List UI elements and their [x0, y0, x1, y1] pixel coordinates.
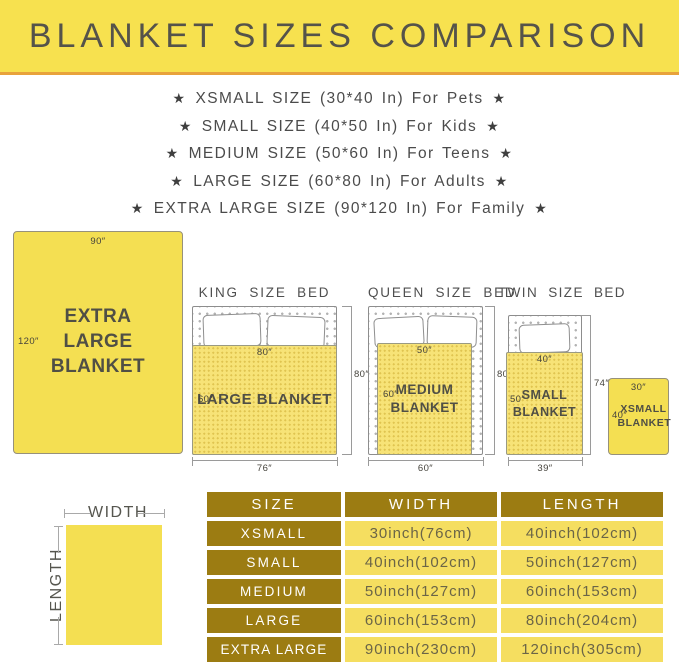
queen-width-dim: 60″	[368, 463, 483, 474]
width-dim-line	[138, 513, 164, 514]
xs-width-dim: 30″	[609, 382, 668, 393]
star-icon: ★	[179, 118, 193, 134]
width-legend-label: WIDTH	[88, 504, 138, 522]
pillow	[202, 313, 261, 348]
pillow	[519, 323, 571, 354]
twin-length-dim-line	[590, 315, 591, 455]
row-header: SMALL	[207, 550, 341, 575]
queen-width-dim-line	[368, 460, 483, 461]
king-bed-title: KING SIZE BED	[192, 285, 337, 300]
table-cell: 60inch(153cm)	[345, 608, 497, 633]
star-icon: ★	[534, 200, 548, 216]
row-header: MEDIUM	[207, 579, 341, 604]
size-list-text: SMALL SIZE (40*50 In) For Kids	[202, 118, 477, 135]
xs-length-dim: 40″	[612, 410, 627, 421]
dim-tick	[64, 509, 65, 518]
twin-width-dim: 39″	[508, 463, 582, 474]
star-icon: ★	[170, 173, 184, 189]
medium-blanket-length-dim: 60″	[383, 389, 398, 400]
xl-length-dim: 120″	[18, 336, 39, 347]
star-icon: ★	[173, 90, 187, 106]
king-length-dim-line	[351, 306, 352, 455]
table-cell: 40inch(102cm)	[501, 521, 663, 546]
list-item: ★XSMALL SIZE (30*40 In) For Pets★	[0, 85, 679, 113]
size-table: SIZE WIDTH LENGTH XSMALL 30inch(76cm) 40…	[207, 492, 663, 662]
dim-tick	[54, 644, 63, 645]
king-width-dim: 76″	[192, 463, 337, 474]
twin-width-dim-line	[508, 460, 582, 461]
width-dim-line	[64, 513, 90, 514]
xl-blanket-label: EXTRA LARGE BLANKET	[28, 305, 168, 379]
queen-bed-title: QUEEN SIZE BED	[368, 285, 483, 300]
star-icon: ★	[486, 118, 500, 134]
queen-length-dim-line	[494, 306, 495, 455]
list-item: ★LARGE SIZE (60*80 In) For Adults★	[0, 168, 679, 196]
xsmall-blanket: 30″ 40″ XSMALL BLANKET	[608, 378, 669, 455]
infographic: BLANKET SIZES COMPARISON ★XSMALL SIZE (3…	[0, 0, 679, 667]
extra-large-blanket: 90″ 120″ EXTRA LARGE BLANKET	[13, 231, 183, 454]
small-blanket-length-dim: 50″	[510, 394, 525, 405]
page-title: BLANKET SIZES COMPARISON	[29, 17, 650, 56]
star-icon: ★	[166, 145, 180, 161]
table-cell: 50inch(127cm)	[501, 550, 663, 575]
title-banner: BLANKET SIZES COMPARISON	[0, 0, 679, 75]
medium-blanket-width-dim: 50″	[378, 345, 471, 356]
length-dim-line	[58, 617, 59, 644]
table-cell: 40inch(102cm)	[345, 550, 497, 575]
twin-length-dim: 74″	[594, 378, 609, 389]
column-header-size: SIZE	[207, 492, 341, 517]
star-icon: ★	[499, 145, 513, 161]
column-header-length: LENGTH	[501, 492, 663, 517]
size-list-text: EXTRA LARGE SIZE (90*120 In) For Family	[154, 200, 526, 217]
length-dim-line	[58, 526, 59, 553]
large-blanket: 80″ 60″ LARGE BLANKET	[192, 345, 337, 455]
star-icon: ★	[495, 173, 509, 189]
table-cell: 120inch(305cm)	[501, 637, 663, 662]
king-length-dim: 80″	[354, 369, 369, 380]
list-item: ★MEDIUM SIZE (50*60 In) For Teens★	[0, 140, 679, 168]
table-cell: 30inch(76cm)	[345, 521, 497, 546]
table-cell: 90inch(230cm)	[345, 637, 497, 662]
large-blanket-label: LARGE BLANKET	[197, 390, 332, 410]
xl-width-dim: 90″	[14, 236, 182, 247]
table-cell: 50inch(127cm)	[345, 579, 497, 604]
medium-blanket: 50″ 60″ MEDIUM BLANKET	[377, 343, 472, 455]
size-list: ★XSMALL SIZE (30*40 In) For Pets★ ★SMALL…	[0, 85, 679, 223]
row-header: LARGE	[207, 608, 341, 633]
star-icon: ★	[493, 90, 507, 106]
king-width-dim-line	[192, 460, 337, 461]
large-blanket-width-dim: 80″	[193, 347, 336, 358]
table-cell: 80inch(204cm)	[501, 608, 663, 633]
size-list-text: XSMALL SIZE (30*40 In) For Pets	[195, 90, 483, 107]
list-item: ★SMALL SIZE (40*50 In) For Kids★	[0, 113, 679, 141]
dim-tick	[54, 526, 63, 527]
row-header: XSMALL	[207, 521, 341, 546]
large-blanket-length-dim: 60″	[198, 394, 213, 405]
table-cell: 60inch(153cm)	[501, 579, 663, 604]
size-list-text: MEDIUM SIZE (50*60 In) For Teens	[189, 145, 491, 162]
column-header-width: WIDTH	[345, 492, 497, 517]
list-item: ★EXTRA LARGE SIZE (90*120 In) For Family…	[0, 195, 679, 223]
row-header: EXTRA LARGE	[207, 637, 341, 662]
twin-bed-title: TWIN SIZE BED	[498, 285, 594, 300]
small-blanket-width-dim: 40″	[507, 354, 582, 365]
small-blanket: 40″ 50″ SMALL BLANKET	[506, 352, 583, 455]
size-list-text: LARGE SIZE (60*80 In) For Adults	[193, 173, 486, 190]
star-icon: ★	[131, 200, 145, 216]
legend-blanket-swatch	[66, 525, 162, 645]
dim-tick	[164, 509, 165, 518]
